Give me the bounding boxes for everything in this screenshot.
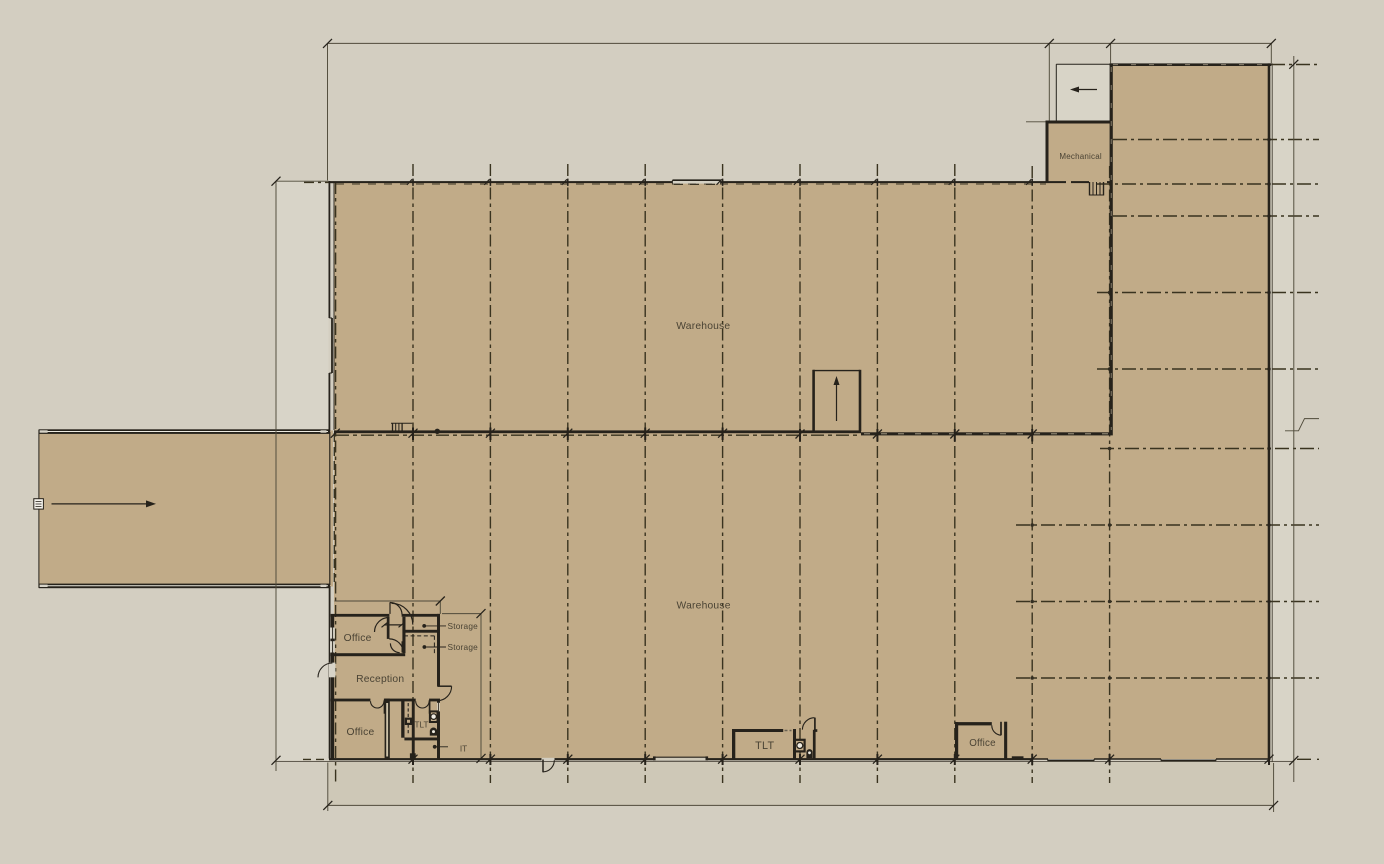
svg-text:Warehouse: Warehouse bbox=[676, 321, 730, 332]
svg-text:IT: IT bbox=[460, 744, 467, 754]
svg-text:TLT: TLT bbox=[755, 740, 774, 752]
svg-text:Office: Office bbox=[344, 633, 372, 644]
svg-text:Storage: Storage bbox=[448, 642, 479, 652]
svg-text:Storage: Storage bbox=[448, 621, 479, 631]
svg-text:TLT: TLT bbox=[415, 721, 429, 730]
svg-text:Reception: Reception bbox=[356, 674, 404, 685]
svg-text:Office: Office bbox=[969, 738, 996, 749]
svg-text:Mechanical: Mechanical bbox=[1059, 152, 1101, 161]
svg-text:Warehouse: Warehouse bbox=[677, 601, 731, 612]
svg-text:Office: Office bbox=[347, 727, 375, 738]
